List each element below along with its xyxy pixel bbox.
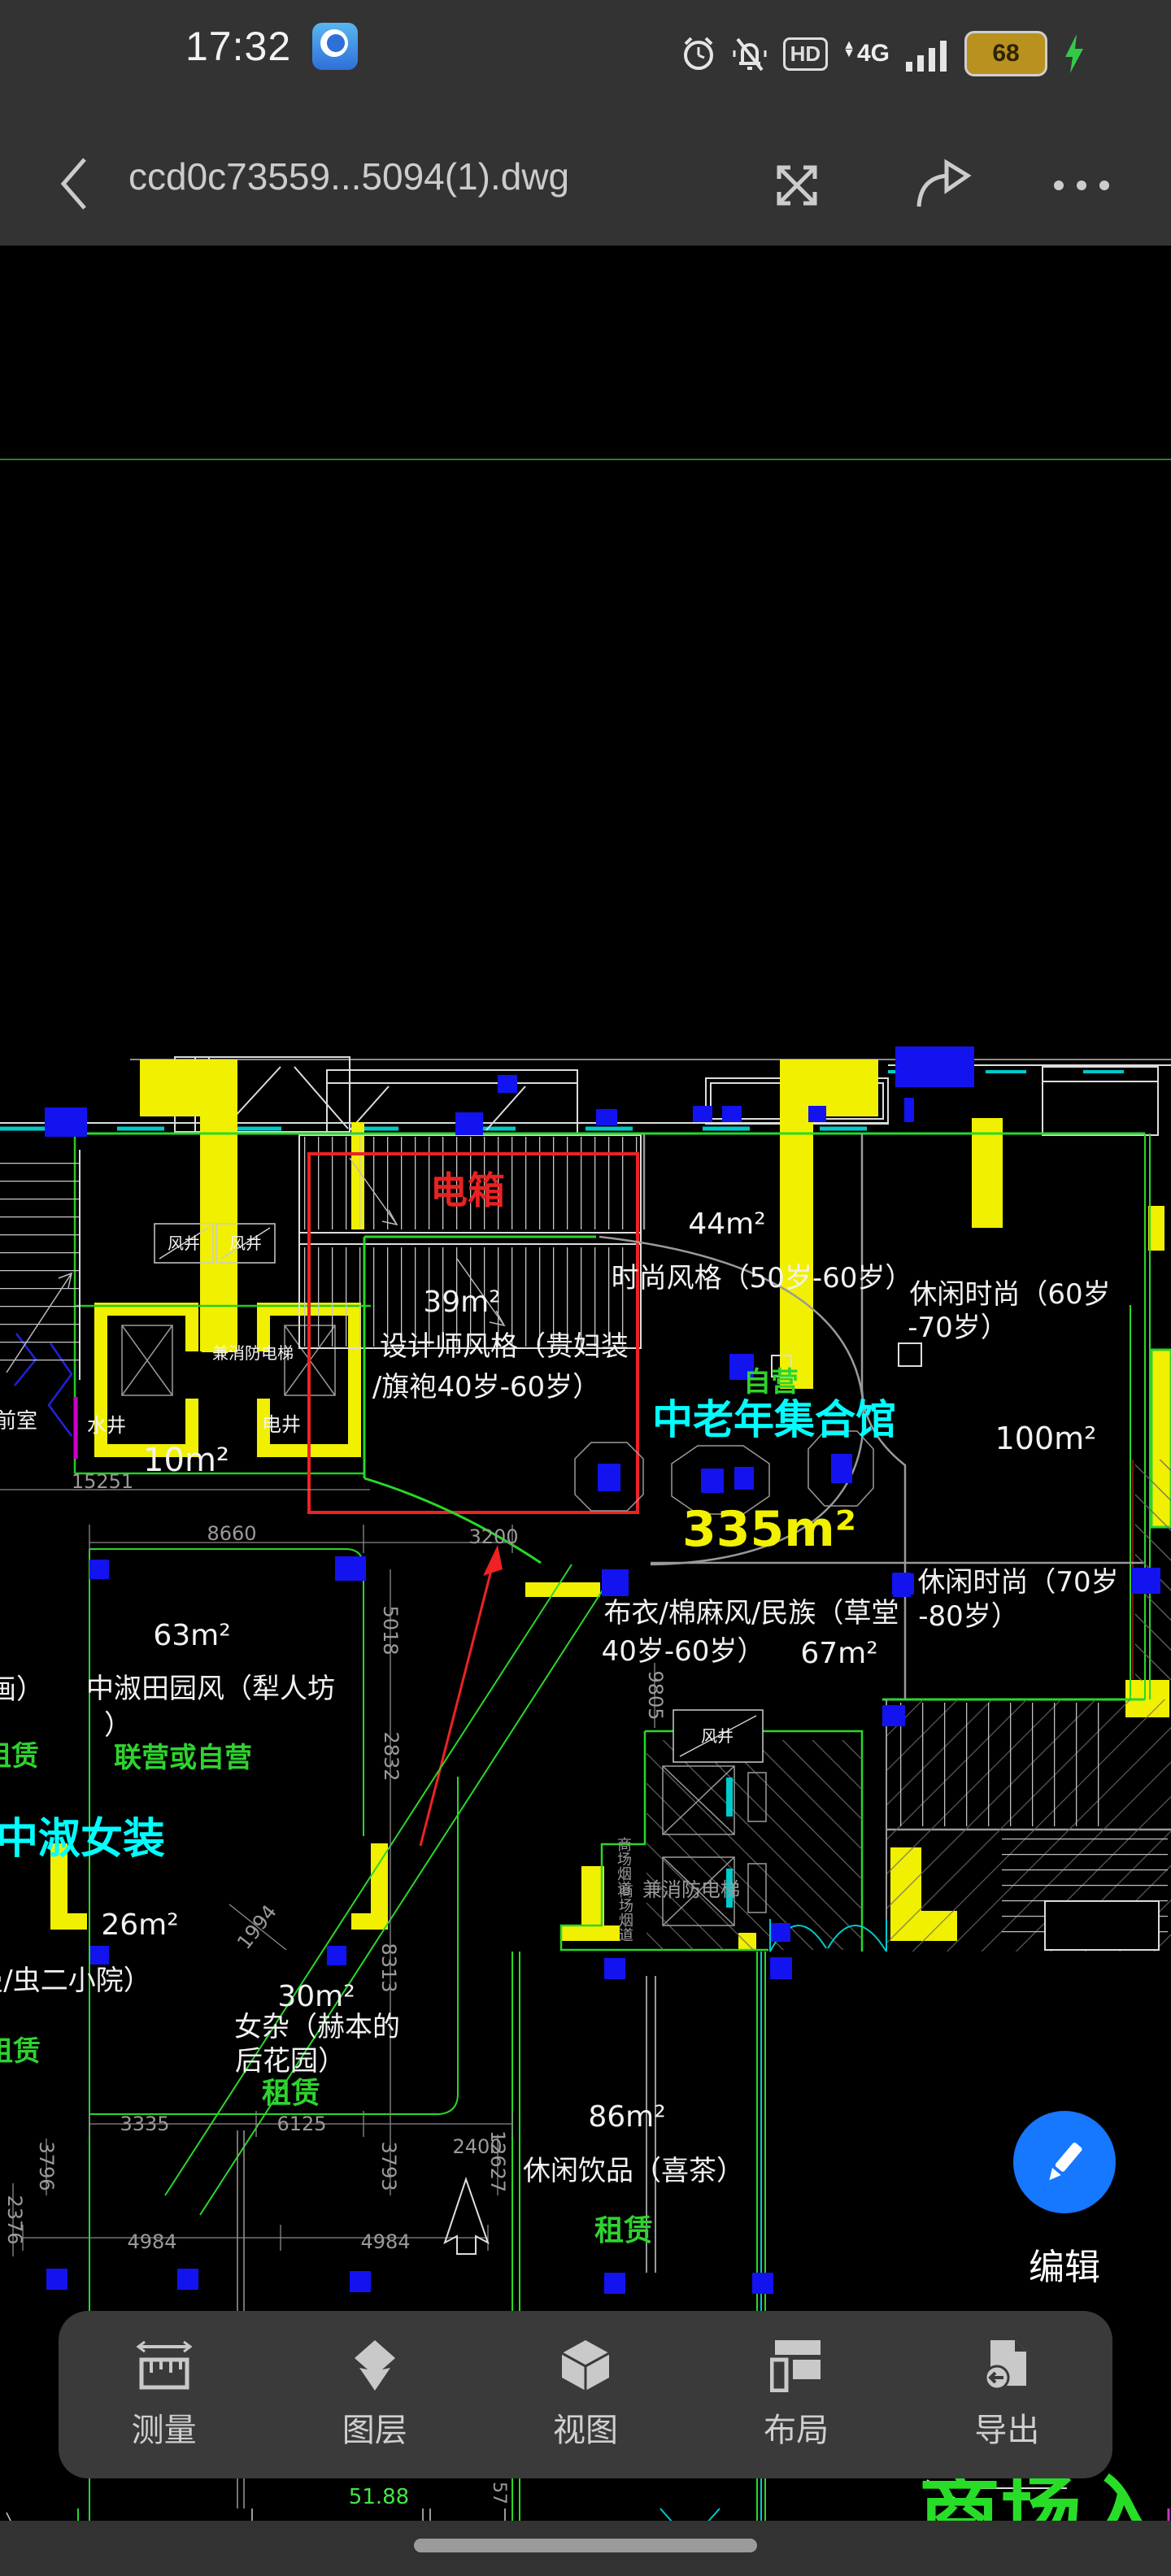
cad-drawing[interactable] <box>0 0 1171 2576</box>
bottom-toolbar: 测量 图层 视图 布局 导出 <box>59 2311 1112 2478</box>
export-icon <box>982 2339 1031 2392</box>
top-chrome: 17:32 <box>0 0 1171 246</box>
tool-layers-label: 图层 <box>342 2404 407 2451</box>
layout-icon <box>770 2339 822 2392</box>
signal-bars-icon <box>904 34 950 73</box>
pencil-icon <box>1038 2135 1091 2189</box>
alarm-icon <box>681 34 716 73</box>
share-button[interactable] <box>909 151 977 220</box>
tool-layout-label: 布局 <box>764 2404 829 2451</box>
tool-views[interactable]: 视图 <box>512 2339 659 2451</box>
mute-bell-icon <box>731 34 768 73</box>
clock-time: 17:32 <box>185 23 291 70</box>
back-button[interactable] <box>50 151 99 216</box>
staircase-left <box>0 1150 80 1380</box>
layers-icon <box>348 2339 402 2392</box>
tool-export-label: 导出 <box>974 2404 1039 2451</box>
status-bar: 17:32 <box>0 23 1171 85</box>
staircase-right <box>886 1699 1171 1952</box>
tool-export[interactable]: 导出 <box>934 2339 1080 2451</box>
edit-button-label: 编辑 <box>1013 2238 1116 2290</box>
service-block <box>646 1710 886 1952</box>
charging-bolt-icon <box>1062 33 1086 75</box>
document-title: ccd0c73559...5094(1).dwg <box>128 154 730 198</box>
notification-app-icon <box>312 23 358 70</box>
battery-indicator: 68 <box>964 31 1047 76</box>
network-type-icon: ▲▼ 4G <box>842 40 890 67</box>
title-bar: ccd0c73559...5094(1).dwg <box>0 122 1171 246</box>
more-menu-button[interactable] <box>1047 151 1116 220</box>
tool-layout[interactable]: 布局 <box>723 2339 869 2451</box>
home-indicator[interactable] <box>414 2539 757 2552</box>
ruler-icon <box>135 2339 194 2392</box>
system-nav-bar <box>0 2521 1171 2576</box>
fit-to-screen-button[interactable] <box>763 151 831 220</box>
tool-measure[interactable]: 测量 <box>91 2339 237 2451</box>
tool-measure-label: 测量 <box>132 2404 197 2451</box>
tool-views-label: 视图 <box>553 2404 618 2451</box>
edit-button[interactable] <box>1013 2111 1116 2213</box>
hd-badge: HD <box>783 37 829 71</box>
cube-icon <box>560 2339 611 2392</box>
tool-layers[interactable]: 图层 <box>302 2339 448 2451</box>
